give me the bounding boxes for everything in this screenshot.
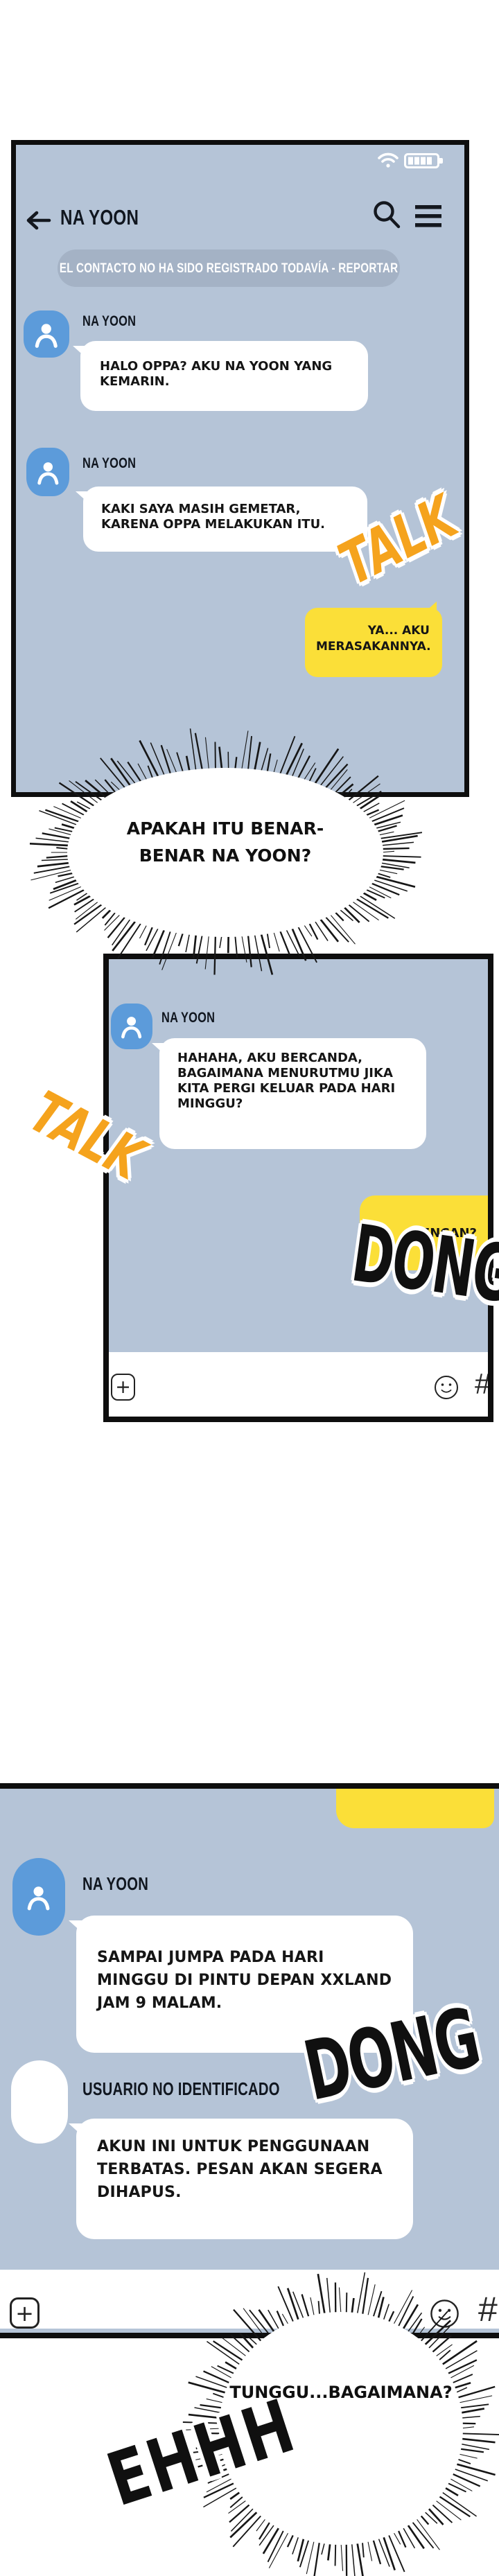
- outgoing-bubble-clipped: [336, 1789, 494, 1828]
- emoji-button[interactable]: [434, 1375, 459, 1403]
- avatar: [26, 448, 69, 496]
- person-icon: [22, 1877, 55, 1917]
- sender-name: NA YOON: [161, 1010, 215, 1026]
- person-icon: [30, 317, 63, 351]
- battery-icon: [404, 153, 443, 168]
- message-bubble: AKUN INI UNTUK PENGGUNAAN TERBATAS. PESA…: [76, 2119, 413, 2239]
- sender-name: NA YOON: [82, 1873, 148, 1895]
- burst-line: APAKAH ITU BENAR-: [52, 815, 399, 842]
- hashtag-button[interactable]: #: [478, 2289, 498, 2329]
- emoji-button[interactable]: [430, 2299, 459, 2329]
- banner-label: EL CONTACTO NO HA SIDO REGISTRADO TODAVÍ…: [60, 261, 398, 277]
- sender-name: NA YOON: [82, 455, 136, 472]
- back-button[interactable]: [24, 209, 52, 235]
- person-icon: [33, 455, 64, 489]
- contact-report-banner[interactable]: EL CONTACTO NO HA SIDO REGISTRADO TODAVÍ…: [58, 249, 400, 287]
- message-input-bar[interactable]: + #: [0, 2270, 499, 2329]
- sender-name: NA YOON: [82, 313, 136, 330]
- hashtag-button[interactable]: #: [475, 1367, 488, 1401]
- burst-text: APAKAH ITU BENAR- BENAR NA YOON?: [52, 815, 399, 869]
- sfx-ehhh: EHHH: [98, 2383, 306, 2523]
- attach-button[interactable]: +: [111, 1374, 135, 1401]
- avatar: [12, 1858, 65, 1936]
- message-bubble: HALO OPPA? AKU NA YOON YANG KEMARIN.: [80, 341, 368, 411]
- attach-button[interactable]: +: [10, 2297, 40, 2329]
- person-icon: [116, 1010, 146, 1043]
- wifi-icon: [378, 152, 399, 168]
- sender-name: USUARIO NO IDENTIFICADO: [82, 2078, 280, 2100]
- search-icon[interactable]: [371, 199, 403, 234]
- avatar: [111, 1004, 152, 1049]
- page-title: NA YOON: [60, 205, 139, 230]
- menu-icon[interactable]: [415, 204, 441, 232]
- burst-text: TUNGGU...BAGAIMANA?: [168, 2383, 499, 2402]
- message-input-bar[interactable]: + #: [109, 1352, 488, 1417]
- outgoing-bubble: YA... AKU MERASAKANNYA.: [305, 608, 442, 677]
- burst-line: TUNGGU...BAGAIMANA?: [168, 2383, 499, 2402]
- burst-line: BENAR NA YOON?: [52, 842, 399, 869]
- chat-panel-1: NA YOON EL CONTACTO NO HA SIDO REGISTRAD…: [11, 140, 469, 797]
- avatar: [24, 310, 69, 358]
- message-bubble: KAKI SAYA MASIH GEMETAR, KARENA OPPA MEL…: [83, 487, 367, 552]
- message-bubble: HAHAHA, AKU BERCANDA, BAGAIMANA MENURUTM…: [159, 1038, 426, 1149]
- avatar-blank: [11, 2060, 68, 2144]
- chat-panel-2: NA YOON HAHAHA, AKU BERCANDA, BAGAIMANA …: [103, 954, 493, 1422]
